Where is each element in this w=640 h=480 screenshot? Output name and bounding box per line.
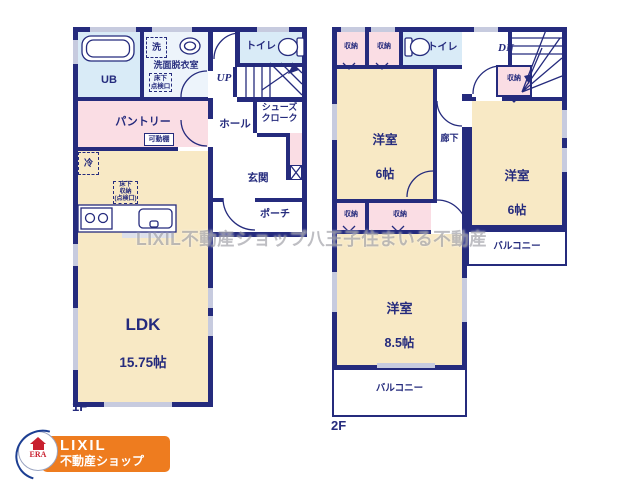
floor1-main-block: UB 洗 洗面脱衣室 床下 点検口 パントリー 可動棚 冷 床下 収納 (点検口… xyxy=(73,27,213,407)
room-unit-bath xyxy=(78,32,140,97)
stairs-up-label: UP xyxy=(215,72,233,85)
wall-segment xyxy=(235,63,302,67)
door-opening xyxy=(462,101,472,127)
closet-2f-e-label: 収納 xyxy=(369,211,431,219)
window-segment xyxy=(104,402,172,407)
balcony-bottom-label: バルコニー xyxy=(334,383,465,394)
window-segment xyxy=(90,27,136,32)
closet-2f-d-label: 収納 xyxy=(337,211,365,219)
window-segment xyxy=(208,288,213,308)
wall-segment xyxy=(508,32,512,69)
room-west-6a-label: 洋室 6帖 xyxy=(337,114,433,201)
porch-label: ポーチ xyxy=(248,209,302,221)
window-segment xyxy=(73,308,78,370)
lixil-brand-text: LIXIL xyxy=(60,438,170,454)
room-size: 8.5帖 xyxy=(337,336,462,351)
toilet-1f-label: トイレ xyxy=(243,41,279,53)
underfloor-storage-box: 床下 収納 (点検口) xyxy=(113,181,138,204)
shoes-closet-cabinet xyxy=(290,133,302,165)
washer-box: 洗 xyxy=(146,37,167,58)
window-segment xyxy=(371,27,395,32)
window-segment xyxy=(474,27,498,32)
movable-shelf-box: 可動棚 xyxy=(144,133,174,146)
corridor-label: 廊下 xyxy=(437,133,462,144)
window-segment xyxy=(562,148,567,172)
window-segment xyxy=(208,316,213,336)
closet-2f-b-label: 収納 xyxy=(369,43,399,51)
entrance-label: 玄関 xyxy=(233,172,283,185)
stairs-down-label: DN xyxy=(496,42,516,55)
lixil-sub-text: 不動産ショップ xyxy=(60,454,170,468)
door-opening xyxy=(208,71,213,98)
window-segment xyxy=(341,27,365,32)
window-segment xyxy=(73,40,78,64)
washroom-label: 洗面脱衣室 xyxy=(144,60,208,71)
room-west-85-label: 洋室 8.5帖 xyxy=(337,282,462,370)
closet-2f-a-label: 収納 xyxy=(337,43,365,51)
toilet-2f-label: トイレ xyxy=(423,42,462,54)
floor1-label: 1F xyxy=(72,399,98,415)
room-size: 6帖 xyxy=(472,203,562,217)
window-segment xyxy=(332,104,337,140)
door-opening xyxy=(208,119,213,147)
pantry-label: パントリー xyxy=(78,116,208,129)
watermark-text: LIXIL不動産ショップ八王子住まいる不動産 xyxy=(136,226,487,251)
ldk-name: LDK xyxy=(78,315,208,335)
floorplan-canvas: UB 洗 洗面脱衣室 床下 点検口 パントリー 可動棚 冷 床下 収納 (点検口… xyxy=(0,0,640,480)
underfloor-hatch-box: 床下 点検口 xyxy=(149,73,172,92)
window-segment xyxy=(332,272,337,312)
shoes-closet-label: シューズ クローク xyxy=(257,102,302,124)
balcony-bottom: バルコニー xyxy=(332,368,467,417)
room-name: 洋室 xyxy=(337,133,433,148)
era-badge-icon: ERA xyxy=(18,431,58,471)
floor2-label: 2F xyxy=(331,418,359,434)
room-name: 洋室 xyxy=(337,301,462,317)
floor2-main-block: 収納 収納 トイレ 洋室 6帖 廊下 収納 収納 洋室 8.5帖 xyxy=(332,27,467,368)
wall-segment xyxy=(233,67,237,97)
window-segment xyxy=(562,110,567,138)
window-segment xyxy=(73,244,78,266)
floor2-stair-block: DN 収納 洋室 6帖 xyxy=(467,27,567,230)
ldk-size: 15.75帖 xyxy=(78,355,208,371)
company-logo: LIXIL 不動産ショップ ERA xyxy=(18,428,188,478)
window-segment xyxy=(257,27,289,32)
room-west-6b-label: 洋室 6帖 xyxy=(472,150,562,237)
unit-bath-label: UB xyxy=(78,74,140,87)
window-segment xyxy=(152,27,192,32)
shoes-closet-xbox xyxy=(290,165,302,180)
wall-segment xyxy=(255,198,302,202)
fridge-box: 冷 xyxy=(78,152,99,175)
floor1-entry-block: トイレ UP ホール シューズ クローク 玄関 ポーチ xyxy=(208,27,307,237)
ldk-label: LDK 15.75帖 xyxy=(78,296,208,390)
door-opening xyxy=(462,32,472,94)
hall-label: ホール xyxy=(213,118,257,131)
room-size: 6帖 xyxy=(337,167,433,181)
window-segment xyxy=(462,278,467,322)
room-name: 洋室 xyxy=(472,169,562,184)
wall-segment xyxy=(213,198,223,202)
closet-2f-c-label: 収納 xyxy=(496,75,532,83)
